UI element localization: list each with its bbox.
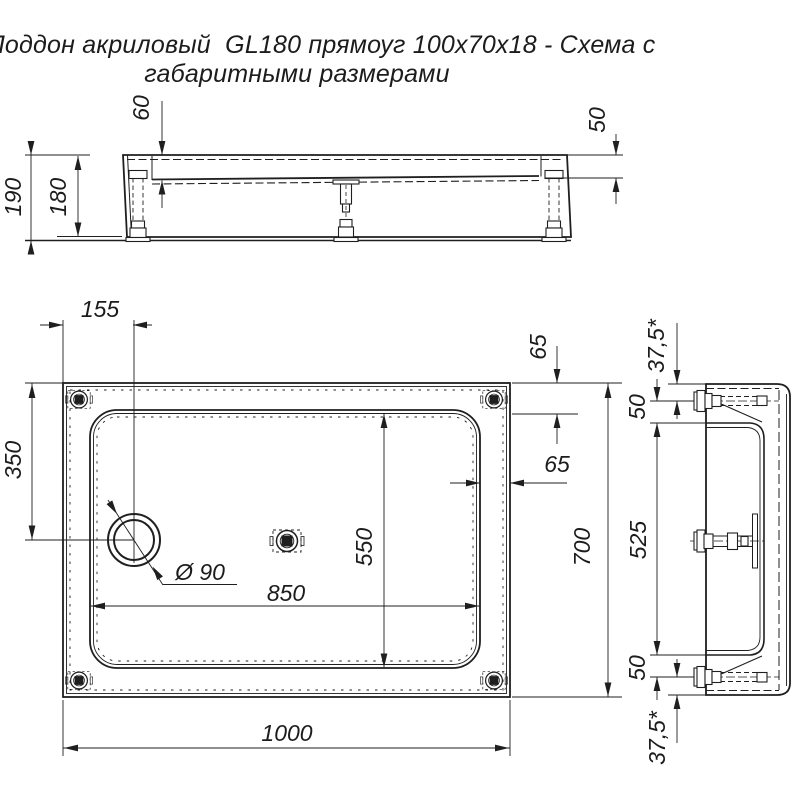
dim-label-overall-height: 190 (0, 178, 26, 217)
dim-arrow (654, 387, 661, 401)
tray-skirt-inner-edge (128, 155, 132, 237)
leg-right (542, 171, 566, 242)
dim-arrow (674, 370, 681, 384)
title-block: Поддон акриловый GL180 прямоуг 100х70х18… (0, 31, 656, 88)
leg-center (333, 180, 359, 242)
dim-arrow (107, 500, 120, 515)
side-view: 37,5* 50 525 50 37,5* (624, 318, 790, 765)
dim-arrow (554, 414, 561, 428)
dim-arrow (75, 156, 82, 170)
dim-arrow (28, 241, 35, 255)
dim-label-length: 1000 (261, 720, 312, 746)
dim-arrow (554, 369, 561, 383)
foot-top-left (65, 391, 92, 409)
dim-label-edge-to-leg-top: 37,5* (643, 318, 669, 373)
dim-arrow (613, 141, 620, 155)
dim-label-width: 700 (569, 528, 595, 567)
dim-arrow (28, 141, 35, 155)
foot-bottom-left (65, 672, 92, 690)
dim-label-depth-left: 60 (128, 95, 154, 121)
dim-label-edge-to-leg-bottom: 37,5* (644, 710, 670, 765)
dim-arrow (674, 663, 681, 677)
dim-label-rim-top: 65 (525, 334, 551, 360)
dim-arrow (133, 322, 147, 329)
dim-arrow (613, 178, 620, 192)
dim-arrow (29, 384, 36, 398)
dim-label-drain-diameter: Ø 90 (174, 559, 225, 585)
title-line-1: Поддон акриловый GL180 прямоуг 100х70х18… (0, 31, 656, 59)
dim-arrow (466, 480, 480, 487)
dim-arrow (159, 181, 166, 195)
dim-arrow (654, 641, 661, 655)
basin-floor-line (152, 176, 539, 180)
dim-label-rim-side: 65 (544, 451, 570, 477)
technical-drawing: Поддон акриловый GL180 прямоуг 100х70х18… (0, 0, 800, 800)
dim-arrow (654, 677, 661, 691)
foot-center (270, 530, 304, 552)
foot-top-right (480, 391, 507, 409)
dim-arrow (29, 526, 36, 540)
dim-label-body-height: 180 (45, 178, 71, 217)
dim-label-drain-offset-left: 155 (81, 296, 120, 322)
dim-arrow (64, 745, 78, 752)
dim-label-leg-to-floor-bottom: 50 (624, 655, 650, 681)
dim-arrow (159, 141, 166, 155)
dim-arrow (381, 414, 388, 428)
dim-arrow (510, 480, 524, 487)
dim-label-leg-to-floor-top: 50 (624, 394, 650, 420)
dim-arrow (495, 745, 509, 752)
dim-arrow (49, 322, 63, 329)
drawing-page: Поддон акриловый GL180 прямоуг 100х70х18… (0, 0, 800, 800)
dim-arrow (605, 683, 612, 697)
dim-label-floor-span: 525 (625, 521, 651, 560)
dim-label-basin-width: 550 (351, 528, 377, 567)
dim-label-drain-offset-top: 350 (0, 441, 26, 480)
front-dimension-lines (25, 101, 623, 253)
dim-arrow (75, 223, 82, 237)
front-elevation-view: 190 180 60 50 (0, 95, 623, 254)
dim-arrow (674, 695, 681, 709)
dim-label-depth-right: 50 (584, 107, 610, 133)
dim-arrow (605, 384, 612, 398)
title-line-2: габаритными размерами (144, 60, 449, 88)
dim-label-basin-length: 850 (267, 580, 306, 606)
plan-view: 155 350 Ø 90 850 1000 550 700 65 65 (0, 296, 622, 756)
dim-arrow (381, 654, 388, 668)
dim-arrow (654, 423, 661, 437)
dim-arrow (674, 401, 681, 415)
foot-bottom-right (480, 672, 507, 690)
side-leg-middle (694, 530, 753, 552)
